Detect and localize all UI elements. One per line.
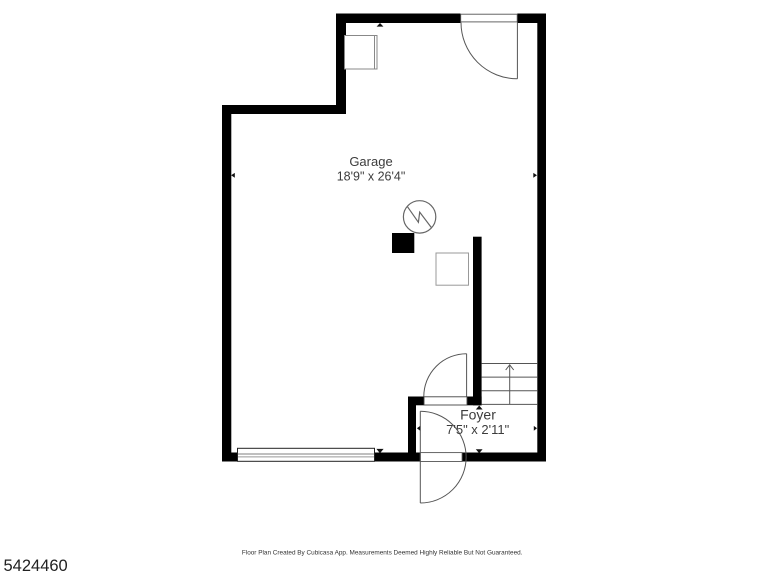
svg-text:18'9" x 26'4": 18'9" x 26'4" — [337, 170, 406, 184]
svg-text:5424460: 5424460 — [4, 557, 68, 575]
svg-text:Floor Plan Created By Cubicasa: Floor Plan Created By Cubicasa App. Meas… — [242, 550, 523, 557]
svg-text:7'5" x 2'11": 7'5" x 2'11" — [446, 422, 509, 437]
svg-text:Garage: Garage — [349, 154, 392, 169]
svg-text:Foyer: Foyer — [460, 407, 496, 423]
